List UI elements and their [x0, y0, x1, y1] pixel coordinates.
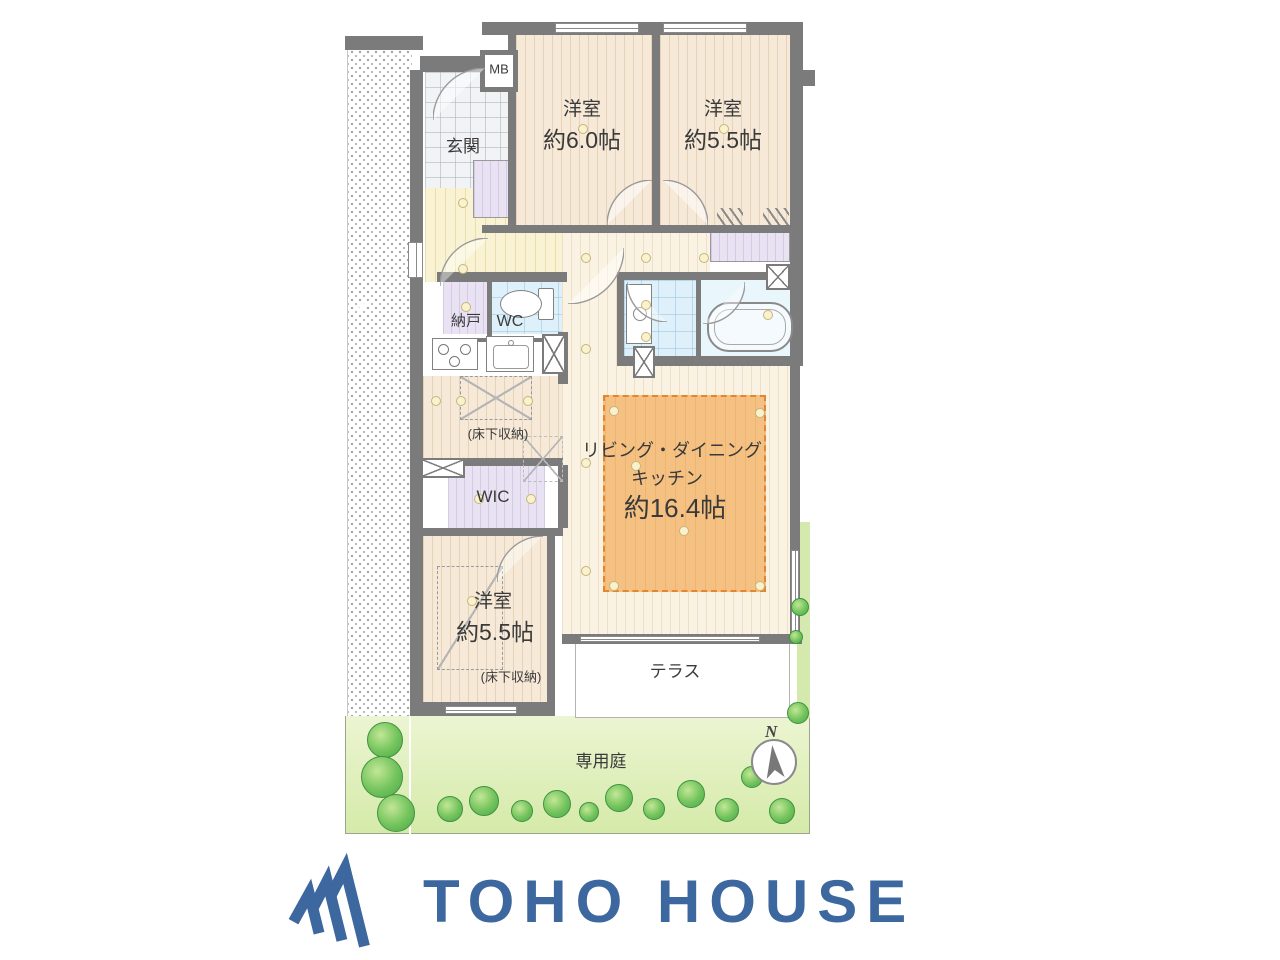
door-arc — [497, 536, 543, 582]
door-arc — [607, 180, 652, 225]
light-dot — [456, 396, 466, 406]
washer-space — [633, 346, 655, 378]
tree-icon — [579, 802, 599, 822]
tree-icon — [377, 794, 415, 832]
tree-icon — [769, 798, 795, 824]
light-dot — [763, 310, 773, 320]
light-dot — [461, 302, 471, 312]
window — [445, 706, 517, 714]
tree-icon — [437, 796, 463, 822]
light-dot — [458, 198, 468, 208]
light-dot — [609, 406, 619, 416]
bedroom-b-name: 洋室 — [704, 99, 742, 121]
light-dot — [641, 300, 651, 310]
light-dot — [581, 344, 591, 354]
entrance-closet — [473, 160, 509, 218]
window — [555, 23, 639, 33]
bedroom-c-name: 洋室 — [474, 591, 512, 613]
stove-icon — [432, 338, 478, 370]
light-dot — [699, 253, 709, 263]
wc-label: WC — [497, 313, 524, 331]
tree-icon — [511, 800, 533, 822]
door-arc — [663, 180, 708, 225]
tree-icon — [543, 790, 571, 818]
wall — [803, 70, 815, 86]
bedroom-b-size: 約5.5帖 — [684, 127, 762, 153]
light-dot — [523, 396, 533, 406]
light-dot — [609, 581, 619, 591]
door-arc — [703, 282, 745, 324]
storage-box — [766, 264, 790, 290]
light-dot — [526, 494, 536, 504]
window — [791, 550, 799, 636]
light-dot — [581, 253, 591, 263]
wall — [482, 225, 792, 233]
light-dot — [458, 264, 468, 274]
wall — [345, 36, 423, 50]
tree-icon — [791, 598, 809, 616]
tree-icon — [367, 722, 403, 758]
page: { "plan": { "meter_box": "MB", "entrance… — [0, 0, 1280, 960]
wall — [790, 22, 803, 356]
underfloor-bedroom-label: (床下収納) — [481, 671, 542, 686]
light-dot — [641, 332, 651, 342]
terrace-label: テラス — [650, 662, 701, 682]
tree-icon — [605, 784, 633, 812]
tree-icon — [715, 798, 739, 822]
wic-label: WIC — [476, 487, 509, 507]
wall — [482, 22, 803, 35]
meter-box-label: MB — [489, 63, 509, 78]
toho-house-logo: TOHO HOUSE — [283, 843, 915, 959]
ldk-label-line2: キッチン — [631, 469, 703, 490]
floor-plan: N MB 玄関 洋室 約6.0帖 洋室 約5.5帖 納戸 WC リビング・ダイニ… — [345, 10, 815, 838]
storage-room-label: 納戸 — [451, 312, 481, 329]
tree-icon — [361, 756, 403, 798]
kitchen-sink-icon — [486, 336, 534, 372]
bedroom-c-size: 約5.5帖 — [456, 619, 534, 645]
ldk-label-line1: リビング・ダイニング — [582, 441, 762, 462]
light-dot — [679, 526, 689, 536]
light-dot — [641, 253, 651, 263]
entrance-label: 玄関 — [446, 137, 480, 157]
light-dot — [755, 408, 765, 418]
tree-icon — [789, 630, 803, 644]
path-outline — [357, 300, 375, 718]
light-dot — [755, 581, 765, 591]
tree-icon — [677, 780, 705, 808]
light-dot — [431, 396, 441, 406]
bedroom-a-name: 洋室 — [563, 99, 601, 121]
storage-box — [421, 458, 465, 478]
tree-icon — [469, 786, 499, 816]
washer-space — [542, 334, 566, 374]
underfloor-kitchen-label: (床下収納) — [468, 428, 529, 443]
wall — [652, 35, 660, 227]
refrigerator-space — [523, 436, 563, 482]
wall — [547, 528, 555, 716]
light-dot — [581, 566, 591, 576]
bedroom-a-size: 約6.0帖 — [543, 127, 621, 153]
north-arrow-icon — [753, 741, 795, 783]
garden-label: 専用庭 — [576, 752, 627, 772]
ldk-size-label: 約16.4帖 — [624, 494, 727, 524]
wall — [410, 70, 423, 716]
tree-icon — [643, 798, 665, 820]
door-arc — [440, 238, 488, 286]
wall — [487, 280, 492, 338]
underfloor-storage-kitchen-box — [460, 376, 532, 420]
wall — [415, 528, 563, 536]
tree-icon — [787, 702, 809, 724]
window — [580, 636, 760, 642]
wall — [696, 280, 701, 358]
window — [663, 23, 747, 33]
door-arc — [568, 248, 624, 304]
closet-bedroom-b — [710, 230, 790, 262]
logo-text: TOHO HOUSE — [423, 867, 915, 936]
compass-icon — [751, 739, 797, 785]
logo-mark-icon — [283, 845, 401, 957]
door-arc — [433, 68, 485, 120]
window — [408, 242, 423, 278]
